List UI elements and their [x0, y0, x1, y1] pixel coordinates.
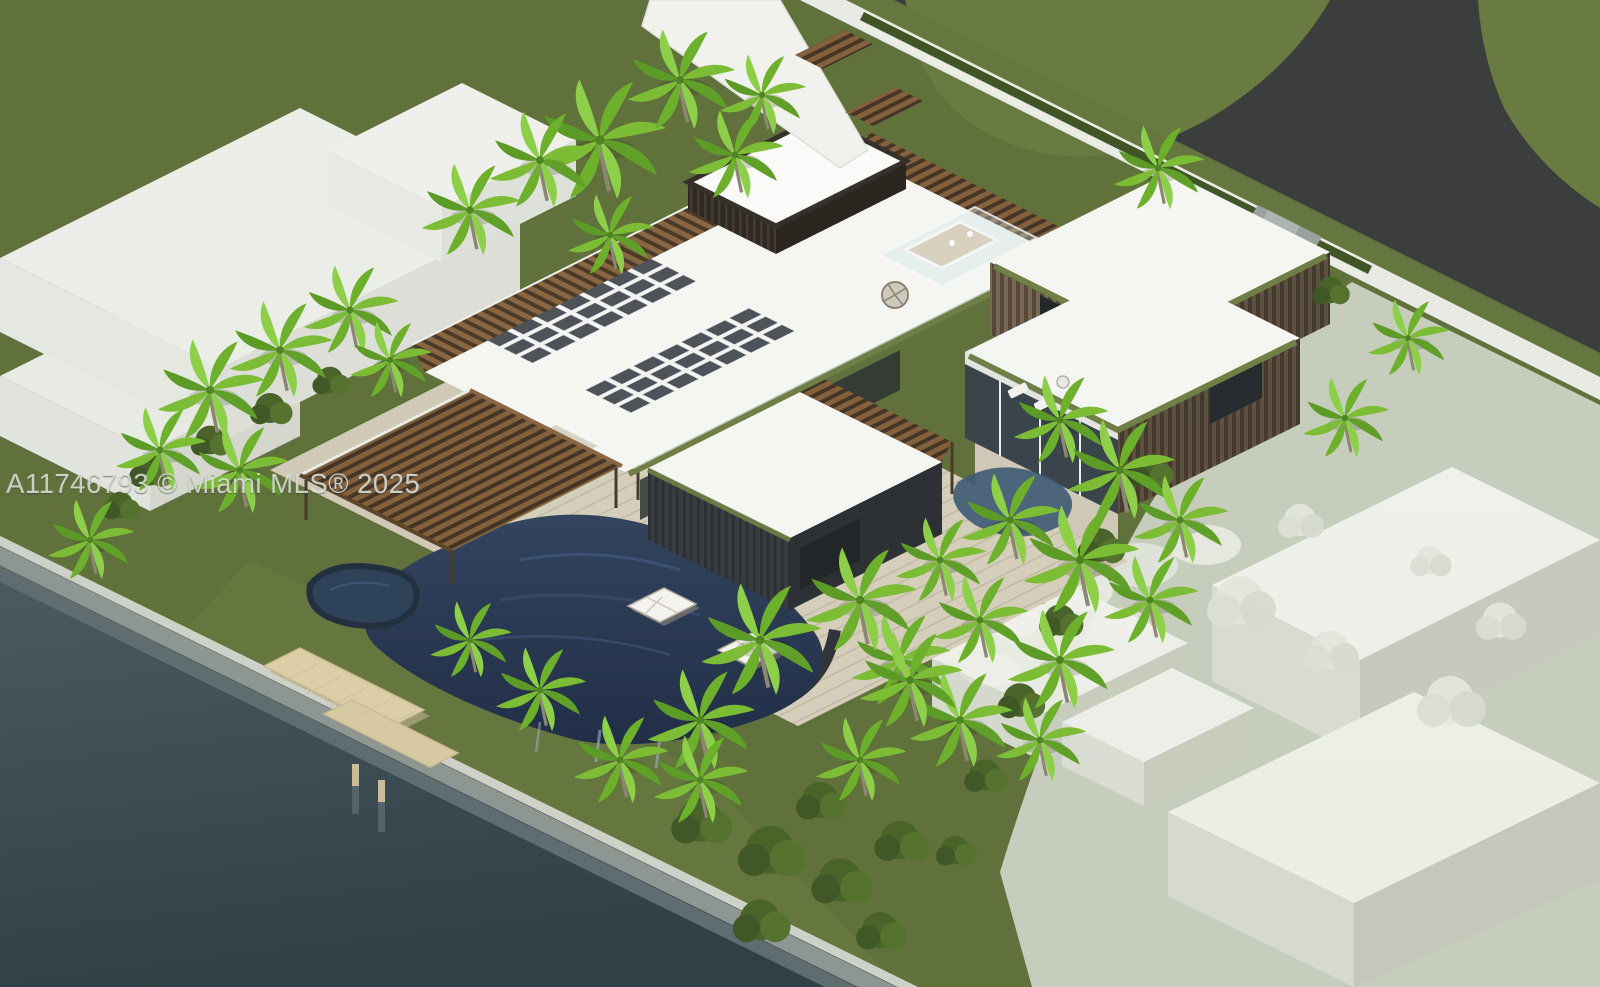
mls-watermark: A11746793 © Miami MLS® 2025 — [6, 468, 420, 500]
dock-piling — [352, 764, 359, 786]
cabana-spa — [310, 566, 417, 626]
architectural-rendering: A11746793 © Miami MLS® 2025 — [0, 0, 1600, 987]
dock-piling — [378, 780, 385, 802]
spiral-stair — [882, 282, 908, 308]
